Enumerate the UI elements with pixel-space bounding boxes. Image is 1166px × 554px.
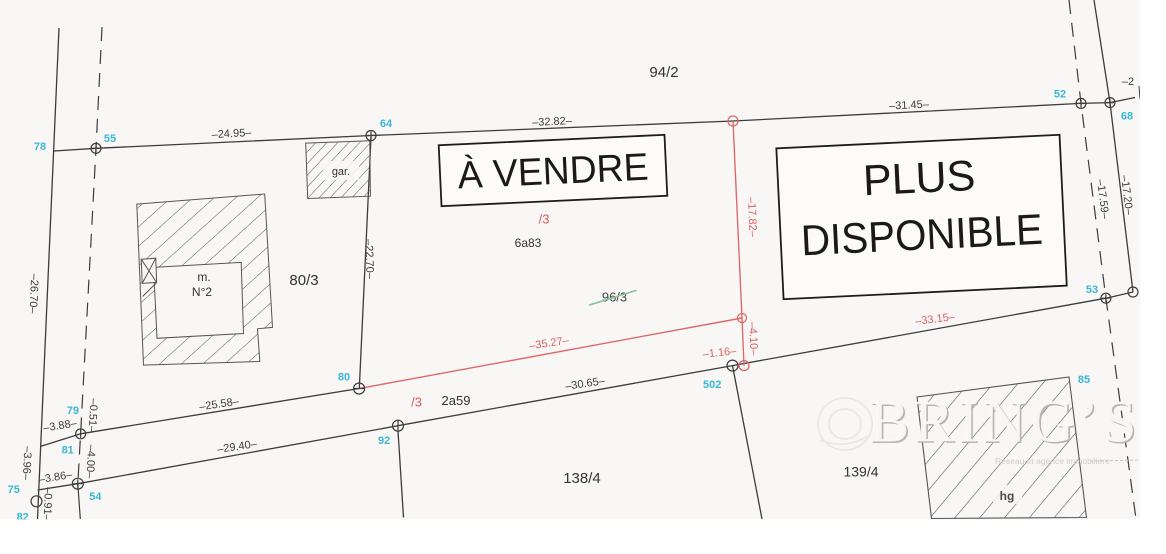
svg-text:À VENDRE: À VENDRE	[457, 146, 650, 198]
svg-text:–17.82–: –17.82–	[745, 197, 759, 238]
svg-text:/3: /3	[411, 395, 422, 410]
svg-text:N°2: N°2	[192, 285, 212, 299]
svg-text:68: 68	[1121, 111, 1133, 123]
svg-text:–31.45–: –31.45–	[889, 99, 930, 113]
svg-text:gar.: gar.	[332, 166, 350, 178]
svg-text:80/3: 80/3	[289, 272, 318, 289]
svg-text:81: 81	[62, 445, 74, 457]
svg-text:6a83: 6a83	[515, 236, 542, 250]
svg-text:PLUS: PLUS	[862, 152, 977, 205]
svg-text:94/2: 94/2	[649, 64, 678, 81]
svg-text:78: 78	[34, 141, 46, 153]
svg-text:64: 64	[380, 118, 393, 130]
svg-text:139/4: 139/4	[843, 464, 878, 480]
svg-text:–22.70–: –22.70–	[362, 239, 375, 280]
svg-text:/3: /3	[539, 212, 550, 227]
svg-text:85: 85	[1078, 374, 1090, 386]
svg-text:–4.10–: –4.10–	[746, 321, 759, 356]
svg-text:–3.96–: –3.96–	[20, 446, 33, 481]
svg-text:80: 80	[338, 372, 350, 384]
svg-text:55: 55	[104, 133, 116, 145]
svg-text:75: 75	[8, 484, 20, 496]
svg-text:–24.95–: –24.95–	[211, 127, 252, 141]
svg-text:–4.00–: –4.00–	[83, 444, 97, 479]
svg-text:–32.82–: –32.82–	[532, 115, 573, 129]
svg-text:hg: hg	[1000, 489, 1015, 503]
svg-text:–2: –2	[1122, 76, 1134, 88]
svg-text:–26.70–: –26.70–	[26, 273, 40, 314]
svg-text:2a59: 2a59	[442, 393, 471, 408]
svg-text:BRING’S: BRING’S	[869, 388, 1141, 454]
svg-text:–0.91–: –0.91–	[41, 487, 54, 522]
svg-text:53: 53	[1086, 284, 1098, 296]
svg-text:m.: m.	[197, 270, 210, 284]
svg-text:54: 54	[89, 491, 102, 503]
svg-text:52: 52	[1054, 89, 1066, 101]
svg-text:138/4: 138/4	[563, 470, 601, 487]
svg-text:502: 502	[703, 379, 721, 391]
svg-text:–0.51–: –0.51–	[86, 398, 100, 433]
svg-text:79: 79	[67, 405, 79, 417]
svg-text:92: 92	[378, 435, 390, 447]
